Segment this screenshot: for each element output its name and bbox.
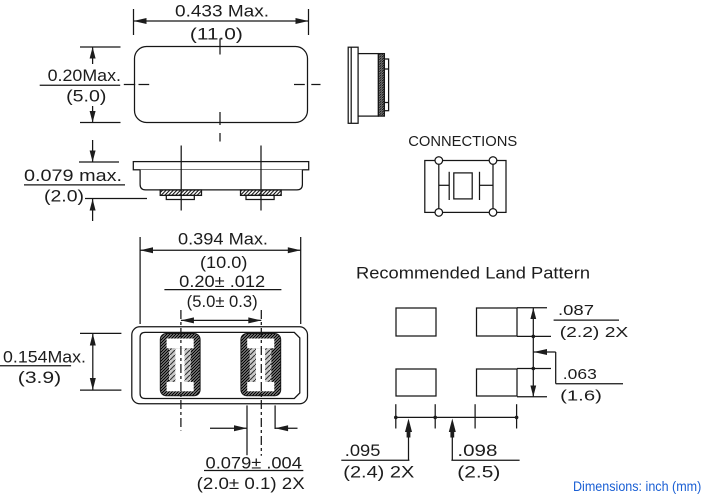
- svg-text:0.079 max.: 0.079 max.: [24, 167, 122, 185]
- svg-text:0.394 Max.: 0.394 Max.: [178, 230, 268, 248]
- svg-text:(10.0): (10.0): [200, 254, 247, 272]
- svg-text:0.079± .004: 0.079± .004: [206, 455, 302, 473]
- svg-text:0.20Max.: 0.20Max.: [48, 67, 121, 85]
- svg-text:(2.0± 0.1) 2X: (2.0± 0.1) 2X: [197, 475, 305, 493]
- svg-text:.098: .098: [457, 442, 497, 460]
- svg-text:(11.0): (11.0): [190, 26, 243, 44]
- svg-text:(5.0± 0.3): (5.0± 0.3): [187, 293, 258, 311]
- svg-text:(3.9): (3.9): [18, 369, 61, 387]
- svg-text:(2.2) 2X: (2.2) 2X: [560, 324, 629, 341]
- svg-text:(2.4) 2X: (2.4) 2X: [343, 464, 414, 482]
- svg-text:(2.5): (2.5): [457, 464, 500, 482]
- svg-text:0.20± .012: 0.20± .012: [179, 273, 265, 291]
- svg-text:.095: .095: [345, 442, 381, 460]
- svg-text:CONNECTIONS: CONNECTIONS: [408, 133, 517, 150]
- svg-text:Recommended Land Pattern: Recommended Land Pattern: [356, 265, 590, 283]
- svg-text:(1.6): (1.6): [560, 388, 602, 405]
- svg-text:(5.0): (5.0): [66, 88, 106, 106]
- svg-text:.063: .063: [563, 366, 597, 383]
- svg-text:Dimensions: inch (mm): Dimensions: inch (mm): [573, 479, 701, 494]
- svg-text:0.433 Max.: 0.433 Max.: [175, 3, 269, 21]
- svg-text:0.154Max.: 0.154Max.: [3, 349, 86, 367]
- svg-text:.087: .087: [558, 302, 594, 319]
- svg-text:(2.0): (2.0): [44, 188, 84, 206]
